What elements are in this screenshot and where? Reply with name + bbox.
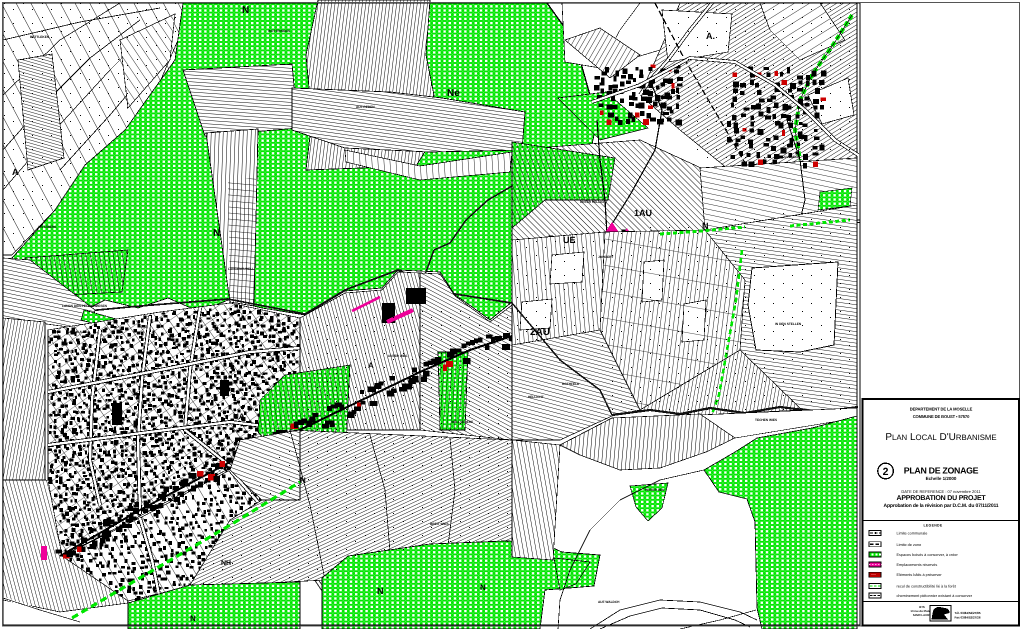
svg-text:Approbation de la révision par: Approbation de la révision par D.C.M. du… bbox=[884, 503, 999, 509]
svg-text:UNTER HELLICHT: UNTER HELLICHT bbox=[580, 200, 608, 204]
svg-text:DEPARTEMENT DE LA MOSELLE: DEPARTEMENT DE LA MOSELLE bbox=[910, 407, 973, 412]
svg-text:JONGERT: JONGERT bbox=[598, 255, 613, 259]
svg-text:PLAN LOCAL D'URBANISME: PLAN LOCAL D'URBANISME bbox=[885, 432, 996, 443]
svg-text:PLAN DE ZONAGE: PLAN DE ZONAGE bbox=[904, 466, 979, 476]
svg-text:ROTHFELD: ROTHFELD bbox=[562, 382, 580, 386]
svg-text:N: N bbox=[213, 228, 220, 239]
svg-text:54520 LAXOU: 54520 LAXOU bbox=[913, 613, 931, 617]
svg-text:WOTTRINGEN: WOTTRINGEN bbox=[268, 29, 290, 33]
svg-text:Limite communale: Limite communale bbox=[897, 532, 928, 536]
svg-text:COMMUNE DE BOUST • 57570: COMMUNE DE BOUST • 57570 bbox=[913, 414, 970, 419]
svg-text:Echelle 1/2000: Echelle 1/2000 bbox=[926, 476, 957, 481]
svg-text:A: A bbox=[368, 361, 374, 370]
svg-text:1AU: 1AU bbox=[634, 208, 652, 218]
svg-text:UNTER WEG: UNTER WEG bbox=[388, 354, 408, 358]
svg-text:N: N bbox=[377, 586, 384, 596]
svg-text:UE: UE bbox=[563, 235, 576, 245]
svg-text:Limite de zone: Limite de zone bbox=[897, 543, 922, 547]
svg-text:LEHMKAUL: LEHMKAUL bbox=[68, 330, 86, 334]
svg-text:N: N bbox=[190, 614, 196, 623]
svg-text:NH: NH bbox=[221, 560, 231, 567]
svg-text:recul de constructibilité lié: recul de constructibilité lié à la forêt bbox=[897, 584, 957, 588]
svg-text:UA: UA bbox=[233, 412, 245, 421]
svg-text:AUF REDEN: AUF REDEN bbox=[356, 105, 375, 109]
svg-text:LANGENFURELL: LANGENFURELL bbox=[228, 267, 254, 271]
svg-text:APPROBATION DU PROJET: APPROBATION DU PROJET bbox=[896, 495, 986, 502]
svg-text:HINTER DEN: HINTER DEN bbox=[645, 488, 665, 492]
svg-text:Eléments bâtis à préserver: Eléments bâtis à préserver bbox=[897, 573, 943, 577]
svg-text:DATE DE REFERENCE : 07 novembr: DATE DE REFERENCE : 07 novembre 2011 bbox=[901, 489, 981, 494]
svg-text:A: A bbox=[12, 167, 19, 177]
svg-text:Tél. 03/84/52/27/85: Tél. 03/84/52/27/85 bbox=[955, 611, 981, 615]
svg-text:BETTLEKEN: BETTLEKEN bbox=[30, 35, 50, 39]
svg-text:N: N bbox=[242, 5, 249, 16]
svg-text:N: N bbox=[300, 476, 306, 485]
svg-text:cheminement piétonnier existan: cheminement piétonnier existant à conser… bbox=[897, 594, 973, 598]
svg-text:AUF WALDCH: AUF WALDCH bbox=[598, 600, 620, 604]
svg-text:IN DEN STELLEN: IN DEN STELLEN bbox=[775, 322, 802, 326]
svg-text:LANGS DEN PETERSWIESEN: LANGS DEN PETERSWIESEN bbox=[62, 304, 108, 308]
svg-text:LEGENDE: LEGENDE bbox=[923, 524, 942, 528]
svg-text:TECHEN WIES: TECHEN WIES bbox=[755, 418, 777, 422]
svg-text:Fax 03/84/52/27/26: Fax 03/84/52/27/26 bbox=[955, 616, 981, 620]
svg-text:Emplacements réservés: Emplacements réservés bbox=[897, 563, 938, 567]
svg-text:2AU: 2AU bbox=[530, 327, 550, 338]
svg-text:BREIT WIES: BREIT WIES bbox=[430, 522, 449, 526]
svg-text:HELLICHT: HELLICHT bbox=[528, 395, 544, 399]
svg-text:N: N bbox=[480, 583, 486, 592]
svg-text:Ne: Ne bbox=[447, 88, 460, 99]
svg-text:2: 2 bbox=[883, 466, 889, 478]
svg-text:N: N bbox=[702, 221, 709, 231]
svg-text:Espaces boisés à conserver, à: Espaces boisés à conserver, à créer bbox=[897, 553, 959, 557]
svg-text:BELLVEDERE: BELLVEDERE bbox=[452, 420, 473, 424]
svg-text:A.: A. bbox=[706, 31, 715, 41]
svg-text:KULVENECK: KULVENECK bbox=[780, 155, 800, 159]
svg-text:VINTZBERG: VINTZBERG bbox=[38, 225, 57, 229]
